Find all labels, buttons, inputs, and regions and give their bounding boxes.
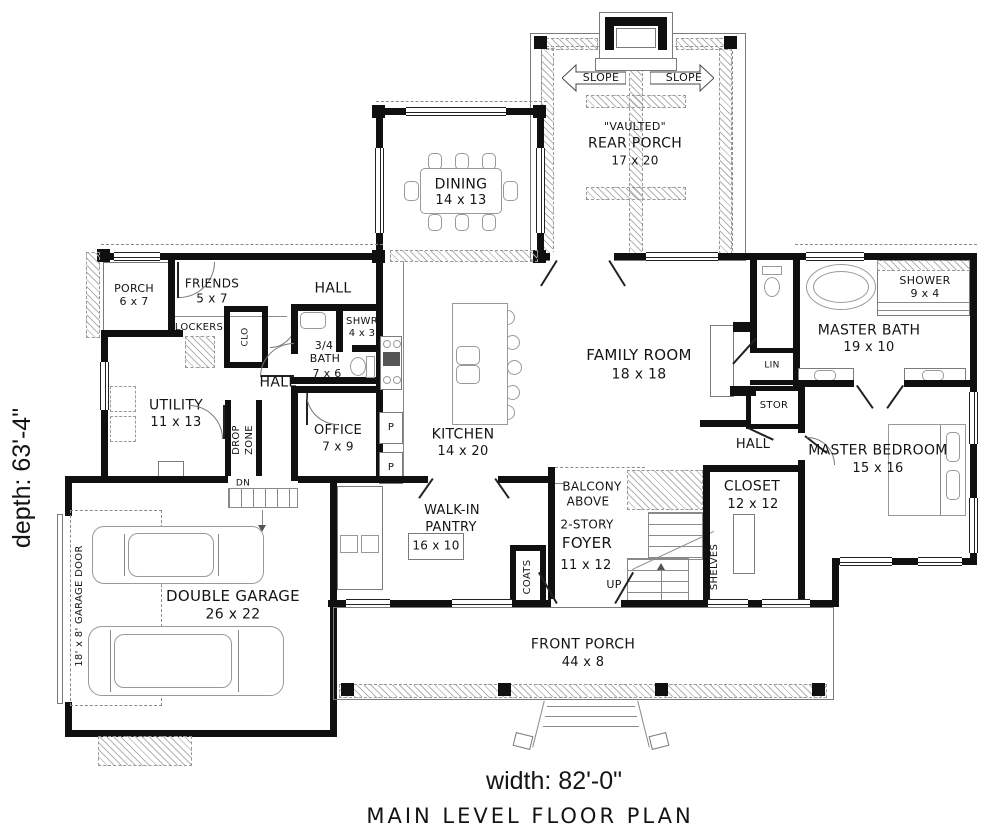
closet-label: CLOSET — [724, 480, 780, 495]
stor-label: STOR — [760, 401, 788, 412]
counter-edge — [403, 262, 404, 476]
window — [375, 148, 384, 233]
rear-porch-dims: 17 x 20 — [611, 155, 658, 168]
depth-dimension: depth: 63'-4" — [9, 408, 35, 548]
burner — [383, 376, 391, 384]
wall — [798, 385, 805, 433]
shower-dims: 9 x 4 — [911, 288, 940, 300]
master-bath-label: MASTER BATH — [818, 324, 921, 339]
pantry-label-1: WALK-IN — [424, 504, 480, 518]
closet-shelf — [733, 514, 755, 574]
open-to-below — [627, 470, 703, 510]
chair — [503, 181, 518, 201]
door-leaf — [540, 260, 558, 287]
door-leaf — [856, 385, 874, 409]
lockers-label: LOCKERS — [175, 323, 223, 334]
lockers-bench — [185, 336, 215, 368]
wall — [224, 306, 230, 368]
kitchen-dims: 14 x 20 — [437, 445, 488, 459]
foyer-dims: 11 x 12 — [560, 559, 611, 573]
porch-step-foot — [513, 732, 534, 750]
drop-zone-label-2: ZONE — [245, 425, 256, 455]
porch-step — [545, 716, 637, 717]
wall — [298, 476, 428, 483]
wall — [65, 476, 228, 483]
window — [536, 148, 545, 233]
wall — [291, 386, 383, 393]
toilet — [350, 357, 366, 376]
steps-arrow — [262, 510, 263, 525]
front-porch-label: FRONT PORCH — [531, 638, 635, 653]
wall — [498, 476, 551, 483]
kitchen-label: KITCHEN — [432, 428, 495, 443]
post — [372, 105, 385, 118]
family-room-dims: 18 x 18 — [612, 368, 667, 383]
balcony-label-1: BALCONY — [562, 481, 621, 494]
pillow — [946, 470, 960, 500]
garage-door-label: 18' x 8' GARAGE DOOR — [75, 545, 86, 666]
window — [840, 557, 892, 566]
family-room-label: FAMILY ROOM — [586, 348, 691, 364]
shower-curb — [878, 310, 970, 311]
office-dims: 7 x 9 — [322, 441, 354, 454]
door-leaf — [223, 405, 225, 439]
master-bedroom-dims: 15 x 16 — [852, 462, 903, 476]
width-dimension: width: 82'-0" — [486, 768, 622, 794]
shower-wall — [877, 260, 970, 271]
bath-label-2: BATH — [310, 353, 340, 365]
burner — [383, 340, 391, 348]
sink — [300, 312, 326, 329]
toilet-tank — [366, 356, 375, 378]
porch-beam — [586, 187, 686, 200]
foyer-label-1: 2-STORY — [560, 519, 613, 532]
dining-dims: 14 x 13 — [435, 194, 486, 208]
door-opening — [854, 379, 904, 388]
friends-label: FRIENDS — [185, 278, 239, 291]
car-line — [124, 534, 125, 576]
bed-line — [940, 425, 941, 515]
car-line — [110, 630, 111, 692]
chair — [404, 181, 419, 201]
front-porch-dims: 44 x 8 — [562, 656, 605, 670]
door-swing-arc — [306, 393, 338, 425]
pullout-p2-label: P — [388, 463, 394, 474]
eave-line — [376, 101, 547, 103]
door-swing-arc — [189, 405, 223, 439]
window — [806, 252, 864, 261]
pillow — [946, 432, 960, 462]
door-leaf — [608, 260, 626, 287]
island-sink — [456, 346, 480, 365]
post — [498, 683, 511, 696]
tub-inner — [813, 271, 869, 303]
chair — [455, 214, 469, 231]
window — [969, 392, 978, 444]
wall — [798, 460, 805, 607]
firebox — [616, 28, 656, 48]
garage-door-panel — [57, 514, 63, 704]
window — [406, 107, 506, 116]
slope-left-label: SLOPE — [583, 72, 619, 84]
burner — [393, 340, 401, 348]
garage-label: DOUBLE GARAGE — [166, 589, 300, 605]
car-cabin — [128, 533, 214, 577]
shwr-dims: 4 x 3 — [349, 329, 376, 340]
washer — [110, 386, 136, 412]
hall-master-label: HALL — [736, 438, 770, 452]
dn-label: DN — [236, 479, 250, 488]
balcony-label-2: ABOVE — [567, 496, 610, 509]
post — [534, 36, 547, 49]
hall-upper-label: HALL — [315, 282, 352, 297]
post — [724, 36, 737, 49]
coats-label: COATS — [523, 560, 534, 595]
foyer-label-2: FOYER — [562, 536, 612, 552]
dryer — [110, 416, 136, 442]
shower-label: SHOWER — [899, 275, 950, 287]
porch-edge — [86, 252, 100, 338]
bath-dims: 7 x 6 — [313, 368, 342, 380]
closet-dims: 12 x 12 — [727, 498, 778, 512]
island-sink — [456, 365, 480, 384]
fireplace-wall — [605, 17, 614, 50]
range-center — [383, 352, 400, 366]
main-level-floor-plan: SLOPE SLOPE "VAULTED" REAR PORCH 17 x 20… — [0, 0, 1000, 840]
friends-dims: 5 x 7 — [196, 293, 228, 306]
post — [655, 683, 668, 696]
window — [969, 498, 978, 553]
wall — [750, 348, 800, 353]
post — [812, 683, 825, 696]
pullout-p1-label: P — [388, 423, 394, 434]
garage-steps — [228, 488, 298, 508]
master-bedroom-label: MASTER BEDROOM — [808, 444, 947, 459]
window — [114, 252, 160, 261]
divider-line — [175, 316, 287, 317]
porch-beam — [719, 48, 732, 254]
eave-line — [795, 244, 977, 246]
post — [533, 105, 546, 118]
lin-label: LIN — [764, 361, 779, 370]
door-leaf — [886, 385, 904, 409]
garage-stoop — [98, 736, 192, 766]
plan-title: MAIN LEVEL FLOOR PLAN — [366, 805, 693, 827]
porch-step — [543, 726, 639, 727]
slope-right-label: SLOPE — [666, 72, 702, 84]
shower-curb — [878, 302, 970, 303]
porch-step-rail — [637, 701, 650, 748]
eave-line — [101, 244, 383, 246]
porch-step — [547, 706, 635, 707]
window — [918, 557, 962, 566]
shwr-label: SHWR — [346, 317, 378, 328]
porch-step-foot — [649, 732, 670, 750]
rear-porch-label: REAR PORCH — [588, 137, 682, 152]
burner — [393, 376, 401, 384]
entry-porch-label: PORCH — [114, 283, 154, 295]
porch-step-rail — [532, 701, 545, 748]
chair — [482, 214, 496, 231]
door-opening — [550, 252, 614, 261]
shelves-label: SHELVES — [710, 544, 721, 590]
toilet-tank — [762, 266, 782, 275]
entry-porch-dims: 6 x 7 — [120, 296, 149, 308]
dining-label: DINING — [435, 178, 488, 193]
clo-label: CLO — [241, 328, 250, 347]
wall — [256, 400, 262, 476]
car-line — [218, 534, 219, 576]
wall — [101, 330, 183, 337]
window — [646, 252, 718, 261]
counter-basin — [340, 535, 358, 553]
post — [341, 683, 354, 696]
up-label: UP — [606, 579, 621, 591]
wall — [336, 304, 343, 352]
stair-arrow-head — [657, 563, 665, 570]
drop-zone-label-1: DROP — [232, 425, 243, 455]
wall — [510, 545, 516, 603]
stairs-upper — [648, 512, 703, 560]
stair-arrow — [661, 570, 662, 604]
bath-label-1: 3/4 — [315, 340, 334, 352]
pantry-dims: 16 x 10 — [412, 540, 459, 553]
balcony-edge — [555, 467, 645, 469]
wall — [703, 465, 805, 472]
porch-beam — [586, 95, 686, 108]
rear-porch-vaulted-label: "VAULTED" — [604, 121, 666, 133]
stool — [507, 360, 522, 375]
window — [100, 362, 109, 410]
fireplace-wall — [658, 17, 667, 50]
wall — [700, 420, 750, 427]
counter-basin — [361, 535, 379, 553]
master-bath-dims: 19 x 10 — [843, 341, 894, 355]
toilet — [764, 277, 780, 297]
chair — [428, 214, 442, 231]
car-line — [238, 630, 239, 692]
wall — [291, 386, 298, 481]
wall — [746, 424, 802, 429]
office-label: OFFICE — [314, 424, 362, 438]
car-cabin — [114, 634, 232, 688]
cased-opening — [390, 250, 538, 262]
garage-dims: 26 x 22 — [206, 608, 261, 623]
front-porch-edge — [339, 684, 827, 698]
wall — [548, 467, 555, 607]
